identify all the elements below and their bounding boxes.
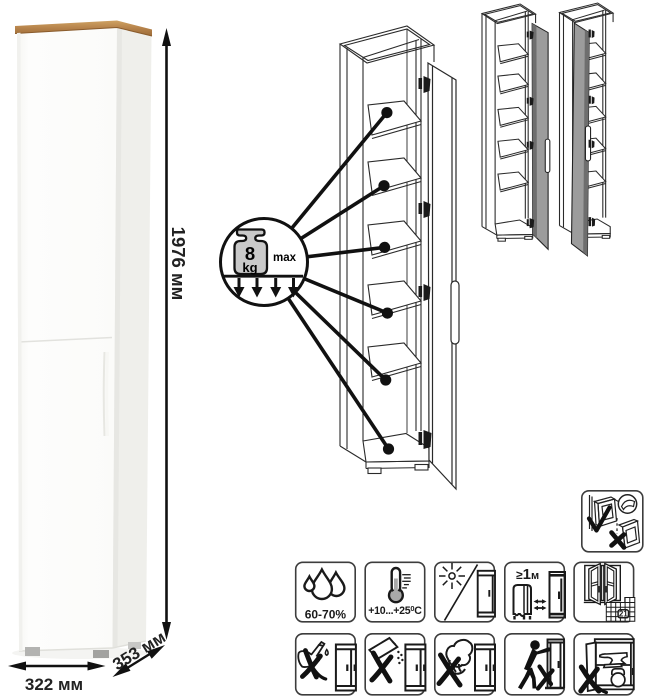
svg-text:60-70%: 60-70% xyxy=(305,608,347,622)
svg-text:1976 мм: 1976 мм xyxy=(168,227,189,301)
svg-text:max: max xyxy=(273,252,297,264)
svg-text:+10...+250C: +10...+250C xyxy=(368,604,422,617)
svg-text:kg: kg xyxy=(242,260,257,275)
svg-text:322 мм: 322 мм xyxy=(25,675,83,694)
svg-text:21: 21 xyxy=(619,609,628,618)
